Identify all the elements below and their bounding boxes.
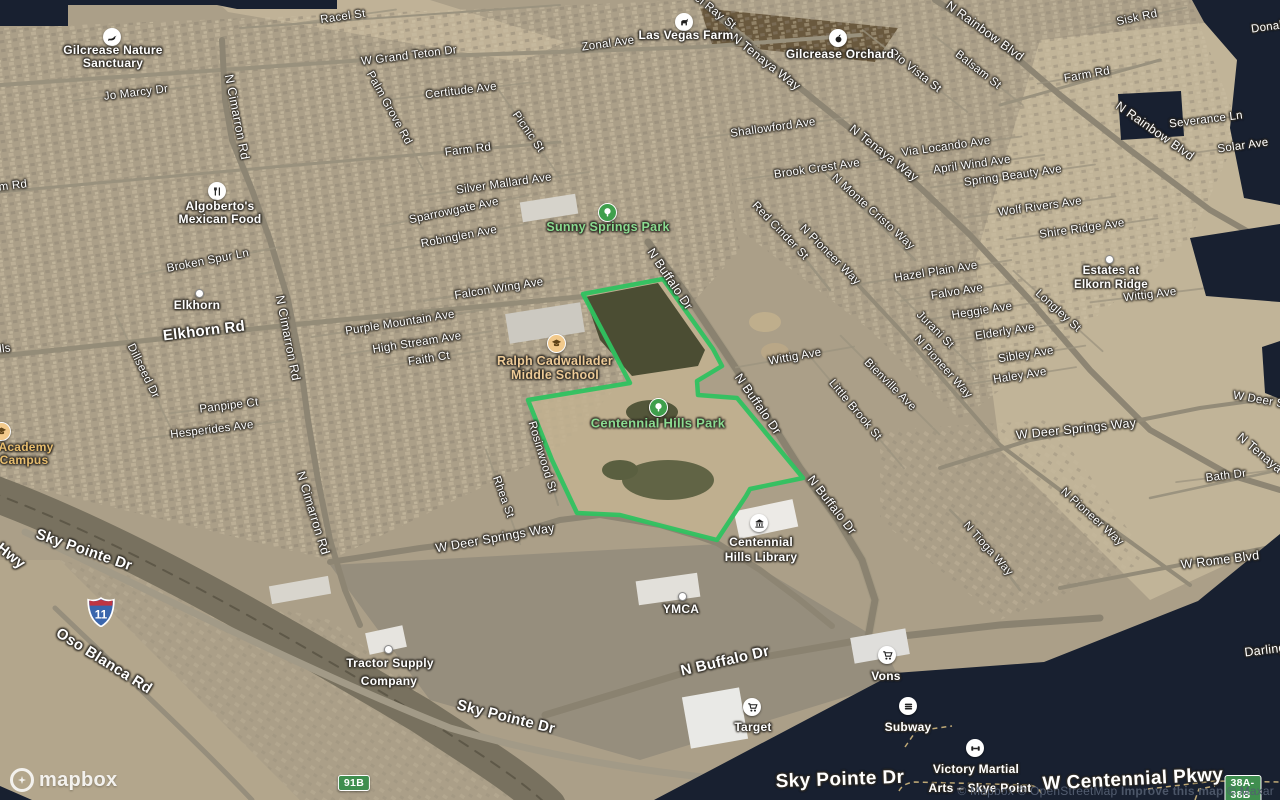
- road-label-sky-pointe-dr-big-text: Sky Pointe Dr: [775, 767, 904, 793]
- road-label-hwy-fragment-text: Hwy: [0, 540, 29, 573]
- road-label-darling-fragment-text: Darling: [1244, 641, 1280, 660]
- road-label-heggie-ave-text: Heggie Ave: [951, 300, 1013, 321]
- road-label-shallowford-ave-text: Shallowford Ave: [730, 116, 817, 140]
- poi-target-label-0[interactable]: Target: [734, 720, 771, 734]
- poi-algobertos-mexican-food-label-0[interactable]: Algoberto's: [186, 199, 255, 213]
- road-label-n-monte-cristo-way-text: N Monte Cristo Way: [829, 172, 917, 252]
- road-label-hazel-plain-ave-text: Hazel Plain Ave: [894, 259, 979, 284]
- interstate-11-shield: 11: [87, 597, 115, 632]
- algobertos-mexican-food-icon[interactable]: [208, 182, 226, 200]
- road-label-via-locando-ave-text: Via Locando Ave: [901, 135, 991, 159]
- attribution-bar: © Mapbox © OpenStreetMap Improve this ma…: [958, 784, 1274, 798]
- road-label-longley-st-text: Longley St: [1033, 288, 1083, 335]
- poi-subway-label-0[interactable]: Subway: [885, 720, 932, 734]
- poi-centennial-hills-library-label-0[interactable]: Centennial: [729, 535, 793, 549]
- road-label-farm-rd-left-text: Farm Rd: [0, 178, 28, 196]
- road-label-farm-rd-right-text: Farm Rd: [1063, 65, 1111, 85]
- subway-icon[interactable]: [899, 697, 917, 715]
- poi-victory-martial-arts-label-0[interactable]: Victory Martial: [933, 762, 1019, 776]
- road-label-falvo-ave-text: Falvo Ave: [930, 282, 984, 302]
- centennial-hills-library-icon[interactable]: [750, 514, 768, 532]
- mapbox-logo-icon: [10, 768, 34, 792]
- route-91b-shield: 91B: [338, 775, 370, 791]
- road-label-w-grand-teton-dr-text: W Grand Teton Dr: [360, 44, 457, 68]
- attribution-maxar-link[interactable]: © Maxar: [1227, 784, 1274, 798]
- road-label-sky-pointe-dr-upper-text: Sky Pointe Dr: [34, 526, 135, 575]
- road-label-racel-st-text: Racel St: [320, 8, 367, 26]
- poi-academy-campus-label-1[interactable]: Campus: [0, 453, 48, 467]
- road-label-w-deer-springs-way-2-text: W Deer Springs Way: [1015, 416, 1137, 443]
- road-label-certitude-ave-text: Certitude Ave: [424, 81, 497, 102]
- road-label-farm-rd-mid-text: Farm Rd: [444, 141, 492, 159]
- road-label-brook-crest-ave-text: Brook Crest Ave: [773, 157, 860, 181]
- attribution-mapbox-link[interactable]: © Mapbox: [958, 784, 1014, 798]
- road-label-sparrowgate-ave-text: Sparrowgate Ave: [408, 196, 500, 227]
- mapbox-logo[interactable]: mapbox: [10, 768, 117, 792]
- elkhorn-icon[interactable]: [195, 289, 204, 298]
- centennial-hills-park-icon[interactable]: [649, 398, 668, 417]
- poi-estates-at-elkorn-ridge-label-1[interactable]: Elkorn Ridge: [1074, 279, 1148, 291]
- attribution-improve-link[interactable]: Improve this map: [1121, 784, 1224, 798]
- road-label-wolf-rivers-ave-text: Wolf Rivers Ave: [997, 195, 1082, 219]
- poi-las-vegas-farm-label-0[interactable]: Las Vegas Farm: [639, 28, 734, 42]
- road-label-elkhorn-rd-text: Elkhorn Rd: [162, 318, 246, 345]
- poi-ralph-cadwallader-middle-school-label-0[interactable]: Ralph Cadwallader: [497, 354, 613, 368]
- road-label-bath-dr-text: Bath Dr: [1205, 468, 1247, 485]
- road-label-dillseed-dr-text: Dillseed Dr: [125, 342, 162, 400]
- road-label-n-cimarron-rd-2-text: N Cimarron Rd: [273, 294, 303, 382]
- road-label-falcon-wing-ave-text: Falcon Wing Ave: [454, 276, 545, 302]
- road-label-robinglen-ave-text: Robinglen Ave: [420, 224, 498, 251]
- ymca-icon[interactable]: [678, 592, 687, 601]
- road-label-balsam-st-text: Balsam St: [953, 48, 1003, 91]
- poi-elkhorn-label-0[interactable]: Elkhorn: [174, 298, 220, 312]
- road-label-wittig-ave-1-text: Wittig Ave: [768, 346, 823, 367]
- road-label-n-cimarron-rd-1-text: N Cimarron Rd: [222, 73, 252, 161]
- road-label-haley-ave-text: Haley Ave: [992, 366, 1047, 386]
- road-label-faith-ct-text: Faith Ct: [407, 350, 451, 368]
- road-label-hills-fragment-text: lls: [0, 342, 12, 355]
- poi-tractor-supply-company-label-1[interactable]: Company: [361, 674, 417, 688]
- road-label-n-pioneer-way-3-text: N Pioneer Way: [1058, 486, 1126, 549]
- road-label-w-deer-springs-way-1-text: W Deer Springs Way: [434, 521, 555, 556]
- victory-martial-arts-icon[interactable]: [966, 739, 984, 757]
- road-label-n-buffalo-dr-1-text: N Buffalo Dr: [644, 246, 695, 313]
- road-label-n-rainbow-blvd-2-text: N Rainbow Blvd: [1113, 99, 1197, 163]
- poi-estates-at-elkorn-ridge-label-0[interactable]: Estates at: [1083, 265, 1140, 277]
- svg-text:11: 11: [95, 608, 108, 621]
- academy-campus-icon[interactable]: [0, 422, 11, 441]
- road-label-silver-mallard-ave-text: Silver Mallard Ave: [455, 171, 552, 196]
- road-label-w-deer-fragment-text: W Deer Spr: [1232, 390, 1280, 413]
- map-canvas[interactable]: Racel StZonal Aveel Ray StW Grand Teton …: [0, 0, 1280, 800]
- road-label-picnic-st-text: Picnic St: [510, 109, 547, 154]
- poi-sunny-springs-park-label-0[interactable]: Sunny Springs Park: [546, 220, 669, 234]
- poi-vons-label-0[interactable]: Vons: [871, 669, 900, 683]
- road-label-n-tenaya-way-1-text: N Tenaya Way: [729, 31, 803, 93]
- road-label-sibley-ave-text: Sibley Ave: [997, 345, 1054, 366]
- road-label-panpipe-ct-text: Panpipe Ct: [199, 396, 259, 415]
- poi-gilcrease-nature-sanctuary-label-1[interactable]: Sanctuary: [83, 56, 143, 70]
- poi-algobertos-mexican-food-label-1[interactable]: Mexican Food: [178, 212, 261, 226]
- poi-centennial-hills-library-label-1[interactable]: Hills Library: [725, 550, 798, 564]
- poi-ymca-label-0[interactable]: YMCA: [663, 602, 699, 616]
- estates-at-elkorn-ridge-icon[interactable]: [1105, 255, 1114, 264]
- poi-centennial-hills-park-label-0[interactable]: Centennial Hills Park: [591, 416, 726, 431]
- road-label-n-tioga-way-text: N Tioga Way: [961, 520, 1016, 579]
- road-label-broken-spur-ln-text: Broken Spur Ln: [166, 247, 250, 275]
- poi-gilcrease-orchard-label-0[interactable]: Gilcrease Orchard: [786, 47, 894, 61]
- road-label-w-rome-blvd-text: W Rome Blvd: [1180, 548, 1260, 572]
- road-label-shire-ridge-ave-text: Shire Ridge Ave: [1039, 217, 1126, 241]
- ralph-cadwallader-middle-school-icon[interactable]: [547, 334, 566, 353]
- gilcrease-orchard-icon[interactable]: [829, 29, 847, 47]
- road-label-little-brook-st-text: Little Brook St: [826, 377, 884, 442]
- road-label-hesperides-ave-text: Hesperides Ave: [170, 419, 255, 441]
- road-label-n-buffalo-dr-3-text: N Buffalo Dr: [805, 473, 860, 537]
- road-label-sisk-rd-text: Sisk Rd: [1116, 8, 1159, 28]
- road-label-solar-ave-text: Solar Ave: [1217, 136, 1269, 155]
- road-label-n-buffalo-dr-bottom-text: N Buffalo Dr: [679, 643, 771, 680]
- poi-academy-campus-label-0[interactable]: Academy: [0, 440, 54, 454]
- road-label-zonal-ave-text: Zonal Ave: [581, 34, 635, 53]
- mapbox-wordmark: mapbox: [39, 769, 117, 792]
- road-label-rhea-st-text: Rhea St: [490, 475, 516, 520]
- road-label-jo-marcy-dr-text: Jo Marcy Dr: [103, 83, 169, 103]
- poi-gilcrease-nature-sanctuary-label-0[interactable]: Gilcrease Nature: [63, 43, 162, 57]
- attribution-osm-link[interactable]: © OpenStreetMap: [1018, 784, 1118, 798]
- target-icon[interactable]: [743, 698, 761, 716]
- road-label-sky-pointe-dr-mid-text: Sky Pointe Dr: [455, 697, 557, 738]
- poi-tractor-supply-company-label-0[interactable]: Tractor Supply: [346, 656, 434, 670]
- road-label-bienville-ave-text: Bienville Ave: [862, 357, 919, 414]
- road-label-n-buffalo-dr-2-text: N Buffalo Dr: [732, 371, 784, 437]
- road-label-palm-grove-rd-text: Palm Grove Rd: [364, 69, 414, 146]
- road-label-n-cimarron-rd-3-text: N Cimarron Rd: [294, 470, 333, 557]
- road-label-rosinwood-st-text: Rosinwood St: [525, 420, 558, 494]
- road-label-elderly-ave-text: Elderly Ave: [974, 321, 1035, 342]
- road-label-donald-text: Donald: [1250, 18, 1280, 35]
- poi-ralph-cadwallader-middle-school-label-1[interactable]: Middle School: [511, 368, 599, 382]
- vons-icon[interactable]: [878, 646, 896, 664]
- map-labels-layer: Racel StZonal Aveel Ray StW Grand Teton …: [0, 0, 1280, 800]
- road-label-rio-vista-st-text: Rio Vista St: [887, 47, 944, 95]
- road-label-severance-ln-text: Severance Ln: [1169, 110, 1244, 131]
- road-label-oso-blanca-rd-text: Oso Blanca Rd: [53, 625, 155, 698]
- tractor-supply-company-icon[interactable]: [384, 645, 393, 654]
